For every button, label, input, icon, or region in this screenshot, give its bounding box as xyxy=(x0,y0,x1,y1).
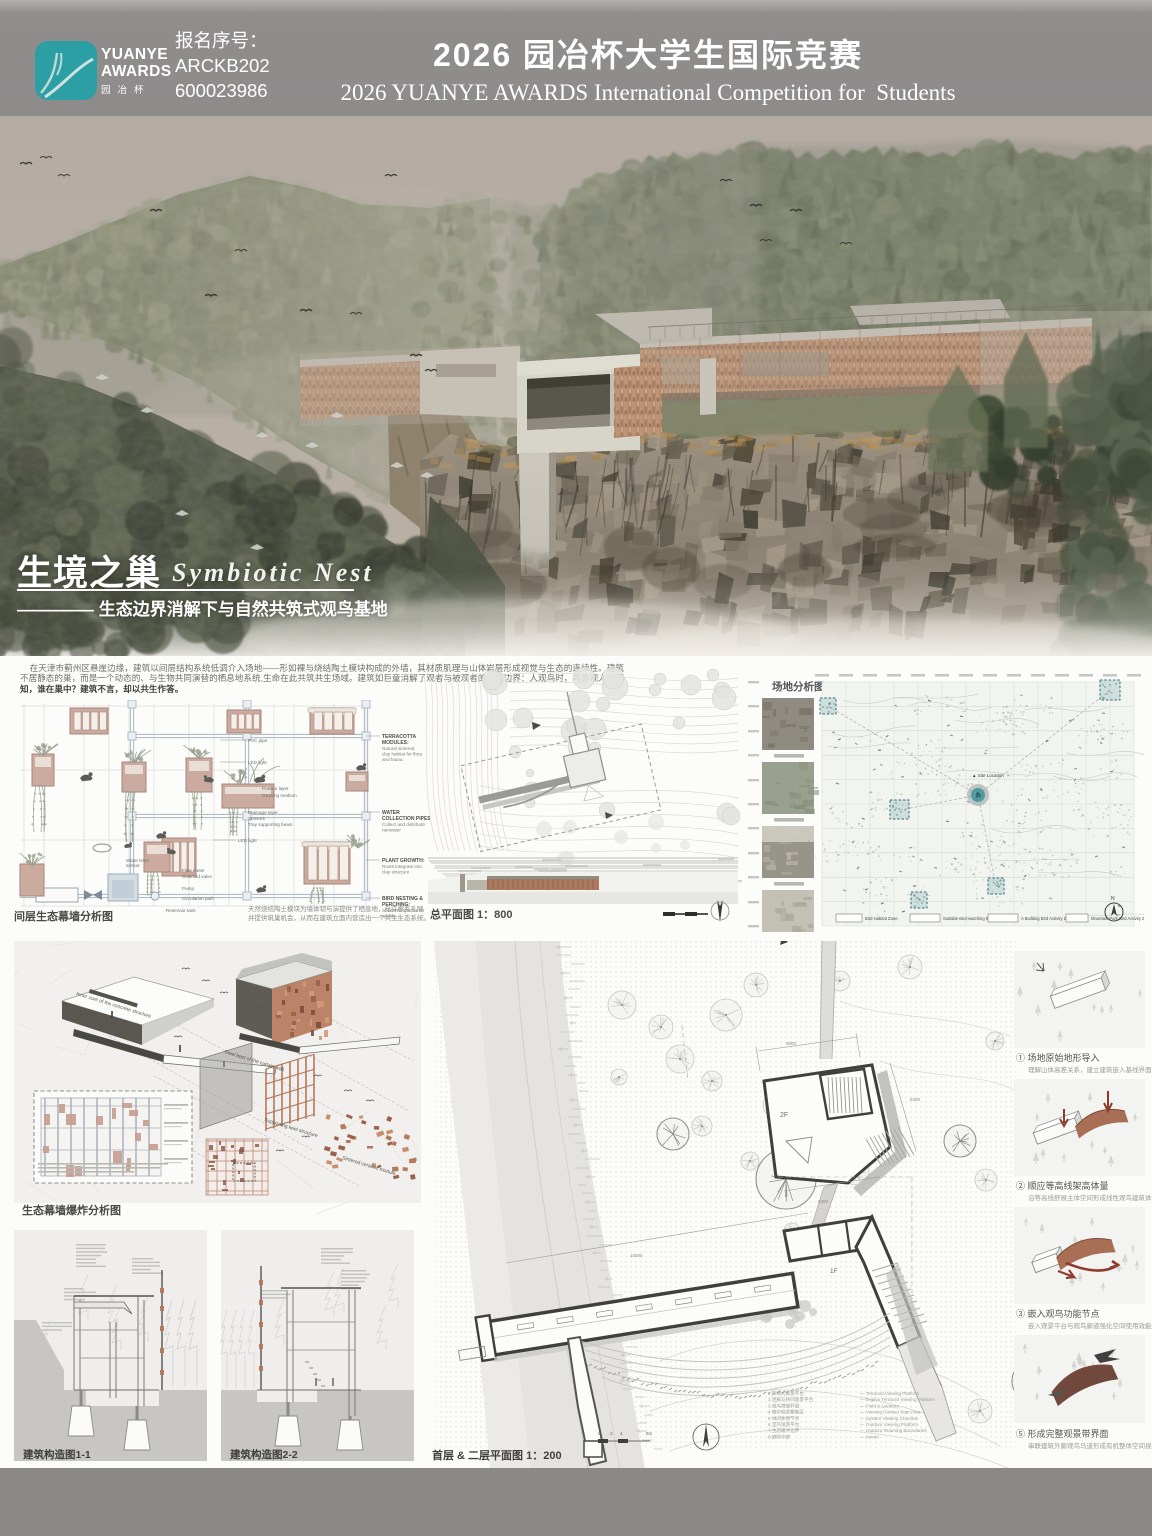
svg-text:① 场地原始地形导入: ① 场地原始地形导入 xyxy=(1016,1052,1100,1063)
svg-text:沿等高线舒展主体空间形成线性观鸟建筑体形: 沿等高线舒展主体空间形成线性观鸟建筑体形 xyxy=(1028,1193,1152,1202)
svg-text:② 顺应等高线架高体量: ② 顺应等高线架高体量 xyxy=(1016,1180,1109,1191)
svg-text:— Viewing Contact Stair Area: — Viewing Contact Stair Area xyxy=(860,1410,921,1415)
svg-text:Circulation path: Circulation path xyxy=(182,896,214,901)
svg-text:建筑构造图2-2: 建筑构造图2-2 xyxy=(229,1448,298,1461)
svg-text:9000: 9000 xyxy=(786,1041,797,1046)
svg-text:Sensors: Sensors xyxy=(248,816,266,821)
svg-text:Bird Habitat Zone: Bird Habitat Zone xyxy=(865,916,898,921)
svg-text:PVC pipe: PVC pipe xyxy=(248,738,268,743)
svg-text:理解山体高差关系，建立建筑嵌入基线界面: 理解山体高差关系，建立建筑嵌入基线界面 xyxy=(1028,1065,1152,1074)
svg-text:Pump: Pump xyxy=(182,886,194,891)
svg-text:sensor: sensor xyxy=(126,863,140,868)
svg-text:— Atrium: — Atrium xyxy=(860,1434,879,1439)
svg-text:— Outdoor Viewing Platform: — Outdoor Viewing Platform xyxy=(860,1422,918,1427)
svg-text:4 集中观景聚集区: 4 集中观景聚集区 xyxy=(768,1409,804,1416)
svg-text:7 生态缓冲边界: 7 生态缓冲边界 xyxy=(768,1427,800,1434)
svg-text:串联建筑外廊观鸟马道形成有机整体空间视察体系: 串联建筑外廊观鸟马道形成有机整体空间视察体系 xyxy=(1028,1441,1152,1450)
svg-text:Collect and distribute: Collect and distribute xyxy=(382,822,425,827)
svg-text:and fauna.: and fauna. xyxy=(382,757,404,762)
svg-text:5 林间休憩节点: 5 林间休憩节点 xyxy=(768,1415,800,1422)
svg-text:间层生态幕墙分析图: 间层生态幕墙分析图 xyxy=(14,909,113,923)
svg-text:场地分析图: 场地分析图 xyxy=(772,680,825,693)
svg-text:— Outdoor Roaming Boundaries: — Outdoor Roaming Boundaries xyxy=(860,1428,927,1433)
svg-text:1F: 1F xyxy=(830,1268,838,1275)
svg-text:— Field & Lavatory: — Field & Lavatory xyxy=(860,1403,900,1408)
svg-text:6 室外观景平台: 6 室外观景平台 xyxy=(768,1421,800,1428)
svg-text:5200: 5200 xyxy=(818,1199,829,1204)
svg-text:8 庭院中庭: 8 庭院中庭 xyxy=(768,1433,791,1440)
svg-text:Drainage layer: Drainage layer xyxy=(248,810,278,815)
svg-text:Solenoid valve: Solenoid valve xyxy=(182,874,212,879)
svg-text:clay structure: clay structure xyxy=(382,870,410,875)
svg-text:LED light: LED light xyxy=(248,760,267,765)
svg-text:Reservoir tank: Reservoir tank xyxy=(166,908,196,913)
svg-text:8400: 8400 xyxy=(910,1097,921,1102)
svg-text:8m: 8m xyxy=(646,1431,653,1436)
svg-text:N: N xyxy=(1111,896,1115,902)
svg-text:嵌入观景平台与观鸟廊道强化空间使用效能结构: 嵌入观景平台与观鸟廊道强化空间使用效能结构 xyxy=(1028,1321,1152,1330)
svg-text:Roots integrate into: Roots integrate into xyxy=(382,864,422,869)
svg-text:LED light: LED light xyxy=(238,838,257,843)
svg-text:总平面图 1：800: 总平面图 1：800 xyxy=(430,907,513,921)
svg-text:rainwater: rainwater xyxy=(382,828,401,833)
svg-text:— Terraced Viewing Platform: — Terraced Viewing Platform xyxy=(860,1391,919,1396)
svg-text:天然烧结陶土模块为墙体韧与演提供了栖息地，允许根系孔隙: 天然烧结陶土模块为墙体韧与演提供了栖息地，允许根系孔隙 xyxy=(248,904,424,913)
svg-text:Growing medium: Growing medium xyxy=(262,793,297,798)
svg-text:⑤ 形成完整观景带界面: ⑤ 形成完整观景带界面 xyxy=(1016,1428,1109,1439)
svg-text:生态幕墙爆炸分析图: 生态幕墙爆炸分析图 xyxy=(22,1203,121,1217)
svg-text:2F: 2F xyxy=(780,1112,788,1119)
svg-text:— System Viewing Chamber: — System Viewing Chamber xyxy=(860,1416,919,1421)
svg-text:Tray supporting beam: Tray supporting beam xyxy=(248,822,293,827)
svg-text:建筑构造图1-1: 建筑构造图1-1 xyxy=(22,1448,91,1461)
svg-text:— Duplex Terraced Viewing Plat: — Duplex Terraced Viewing Platform xyxy=(860,1397,935,1402)
svg-text:▲ Site Location: ▲ Site Location xyxy=(972,773,1004,778)
svg-text:Flow meter: Flow meter xyxy=(182,868,205,873)
svg-text:③ 嵌入观鸟功能节点: ③ 嵌入观鸟功能节点 xyxy=(1016,1308,1100,1319)
svg-text:并提供筑巢机会，从而在建筑立面内营造出一个共生生态系统。: 并提供筑巢机会，从而在建筑立面内营造出一个共生生态系统。 xyxy=(248,913,430,922)
svg-text:Pumice layer: Pumice layer xyxy=(262,786,289,791)
svg-text:15000: 15000 xyxy=(630,1253,643,1258)
svg-text:2 连廊与林间观景平台: 2 连廊与林间观景平台 xyxy=(768,1396,814,1403)
svg-text:1 阶梯式观景平台: 1 阶梯式观景平台 xyxy=(768,1390,804,1397)
svg-text:clay habitat for flora: clay habitat for flora xyxy=(382,752,423,757)
svg-text:3 观鸟塔便杆道: 3 观鸟塔便杆道 xyxy=(768,1402,800,1409)
svg-text:Natural sintered: Natural sintered xyxy=(382,746,415,751)
svg-text:首层 & 二层平面图 1：200: 首层 & 二层平面图 1：200 xyxy=(432,1448,562,1462)
